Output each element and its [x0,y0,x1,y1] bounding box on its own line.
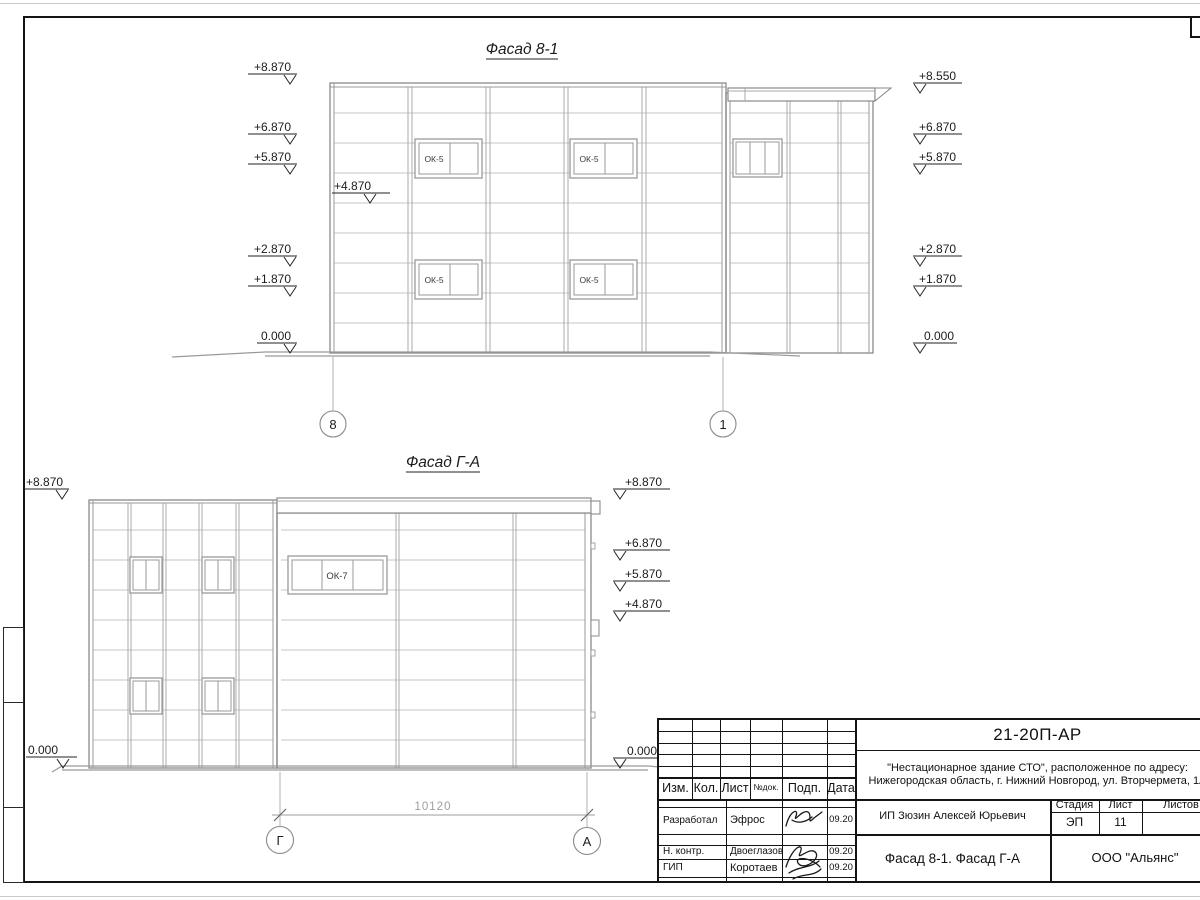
svg-text:+5.870: +5.870 [919,150,956,164]
tall-volume-outline [277,513,591,768]
svg-text:+2.870: +2.870 [919,242,956,256]
elevation-mark: +2.870 [913,242,962,266]
parapet-bracket [591,501,600,514]
elevation-mark: +4.870 [613,597,670,621]
role-nkontr: Н. контр. [659,845,726,859]
low-volume-outline [726,93,873,353]
elevation-mark: +6.870 [248,120,297,144]
role-gip: ГИП [659,859,726,877]
window-3pane [733,139,782,177]
sheet-label: Лист [1099,799,1142,812]
svg-text:0.000: 0.000 [28,743,58,757]
col-header-list: Лист [720,777,750,799]
axis-label: 8 [329,417,336,432]
window-label: ОК-7 [326,571,347,582]
document-number: 21-20П-АР [855,720,1200,750]
axis-bubble-g: Г [267,827,294,854]
window-label: ОК-5 [579,154,598,164]
svg-text:0.000: 0.000 [627,744,657,758]
svg-text:+6.870: +6.870 [254,120,291,134]
svg-text:0.000: 0.000 [924,329,954,343]
facade-8-1-title: Фасад 8-1 [486,41,559,58]
elevation-mark: +5.870 [913,150,962,174]
project-line1: "Нестационарное здание СТО", расположенн… [887,762,1188,775]
edge-tab [591,543,595,549]
sheet-value: 11 [1099,812,1142,834]
svg-text:+6.870: +6.870 [625,536,662,550]
elevation-mark: +6.870 [613,536,670,560]
date-gip: 09.20 [827,859,855,877]
elevation-mark: 0.000 [613,744,662,768]
date-nkontr: 09.20 [827,845,855,859]
window-2pane [202,557,234,593]
svg-text:0.000: 0.000 [261,329,291,343]
svg-text:+5.870: +5.870 [254,150,291,164]
canopy-tip [875,88,891,101]
facade-8-1-view: Фасад 8-1 ОК-5 [172,41,962,437]
window-label: ОК-5 [424,154,443,164]
elevation-mark: 0.000 [913,329,957,353]
svg-text:+8.870: +8.870 [254,60,291,74]
date-razrabotal: 09.20 [827,807,855,834]
window-2pane [202,678,234,714]
sheet-title: Фасад 8-1. Фасад Г-А [855,834,1050,883]
dimension-10120: 10120 [272,772,595,828]
svg-text:+8.870: +8.870 [26,475,63,489]
edge-tab [591,620,599,636]
axis-bubble-1: 1 [710,357,736,437]
elevation-mark: +1.870 [248,272,297,296]
svg-text:+1.870: +1.870 [254,272,291,286]
col-header-ndok: №док. [750,777,782,799]
svg-text:+8.550: +8.550 [919,69,956,83]
organization-name: ООО "Альянс" [1050,834,1200,883]
svg-text:+2.870: +2.870 [254,242,291,256]
stage-value: ЭП [1050,812,1099,834]
signature-razrabotal [780,804,828,834]
window-ok5: ОК-5 [570,139,637,178]
col-header-podp: Подп. [782,777,827,799]
svg-text:+4.870: +4.870 [625,597,662,611]
edge-tab [591,650,595,656]
facade-g-a-title: Фасад Г-А [406,454,480,471]
svg-text:+6.870: +6.870 [919,120,956,134]
stage-label: Стадия [1050,799,1099,812]
main-volume-outline [330,83,726,353]
panel-mullion-lines [128,503,516,768]
elevation-mark: +8.870 [613,475,670,499]
window-2pane [130,557,162,593]
elevation-mark: +5.870 [248,150,297,174]
col-header-izm: Изм. [659,777,692,799]
col-header-kol: Кол. [692,777,720,799]
project-description: "Нестационарное здание СТО", расположенн… [855,750,1200,799]
svg-text:+1.870: +1.870 [919,272,956,286]
window-label: ОК-5 [424,275,443,285]
elevation-mark: +1.870 [913,272,962,296]
role-razrabotal: Разработал [659,807,726,834]
canopy [728,88,875,101]
axis-label: 1 [719,417,726,432]
title-block: Изм. Кол. Лист №док. Подп. Дата Разработ… [657,718,1200,883]
edge-tab [591,712,595,718]
svg-text:+5.870: +5.870 [625,567,662,581]
main-volume-outline [89,500,277,768]
svg-text:+8.870: +8.870 [625,475,662,489]
name-gip: Коротаев [726,859,782,877]
elevation-mark: +2.870 [248,242,297,266]
elevation-mark: +8.550 [913,69,962,93]
elevation-mark: +5.870 [613,567,670,591]
dimension-value: 10120 [415,801,452,813]
client-name: ИП Зюзин Алексей Юрьевич [855,799,1050,834]
elevation-mark: 0.000 [257,329,297,353]
facade-g-a-view: Фасад Г-А [24,454,705,855]
elevation-mark: 0.000 [26,743,77,768]
axis-label: Г [276,833,283,848]
name-nkontr: Двоеглазов [726,845,782,859]
axis-bubble-a: А [574,828,601,855]
elevation-mark: +8.870 [248,60,297,84]
axis-bubble-8: 8 [320,357,346,437]
ground-line [52,766,705,772]
svg-text:+4.870: +4.870 [334,179,371,193]
drawing-sheet: Фасад 8-1 ОК-5 [0,0,1200,900]
panel-mullion-lines [408,87,841,353]
elevation-mark: +8.870 [24,475,69,499]
window-ok5: ОК-5 [415,139,482,178]
col-header-data: Дата [827,777,855,799]
window-ok5: ОК-5 [570,260,637,299]
window-ok5: ОК-5 [415,260,482,299]
project-line2: Нижегородская область, г. Нижний Новгоро… [869,775,1200,788]
parapet-band [277,498,591,513]
elevation-mark: +4.870 [332,179,390,203]
axis-label: А [583,834,592,849]
sheets-label: Листов [1142,799,1200,812]
window-2pane [130,678,162,714]
window-ok7: ОК-7 [288,556,387,594]
window-label: ОК-5 [579,275,598,285]
elevation-mark: +6.870 [913,120,962,144]
name-razrabotal: Эфрос [726,807,782,834]
